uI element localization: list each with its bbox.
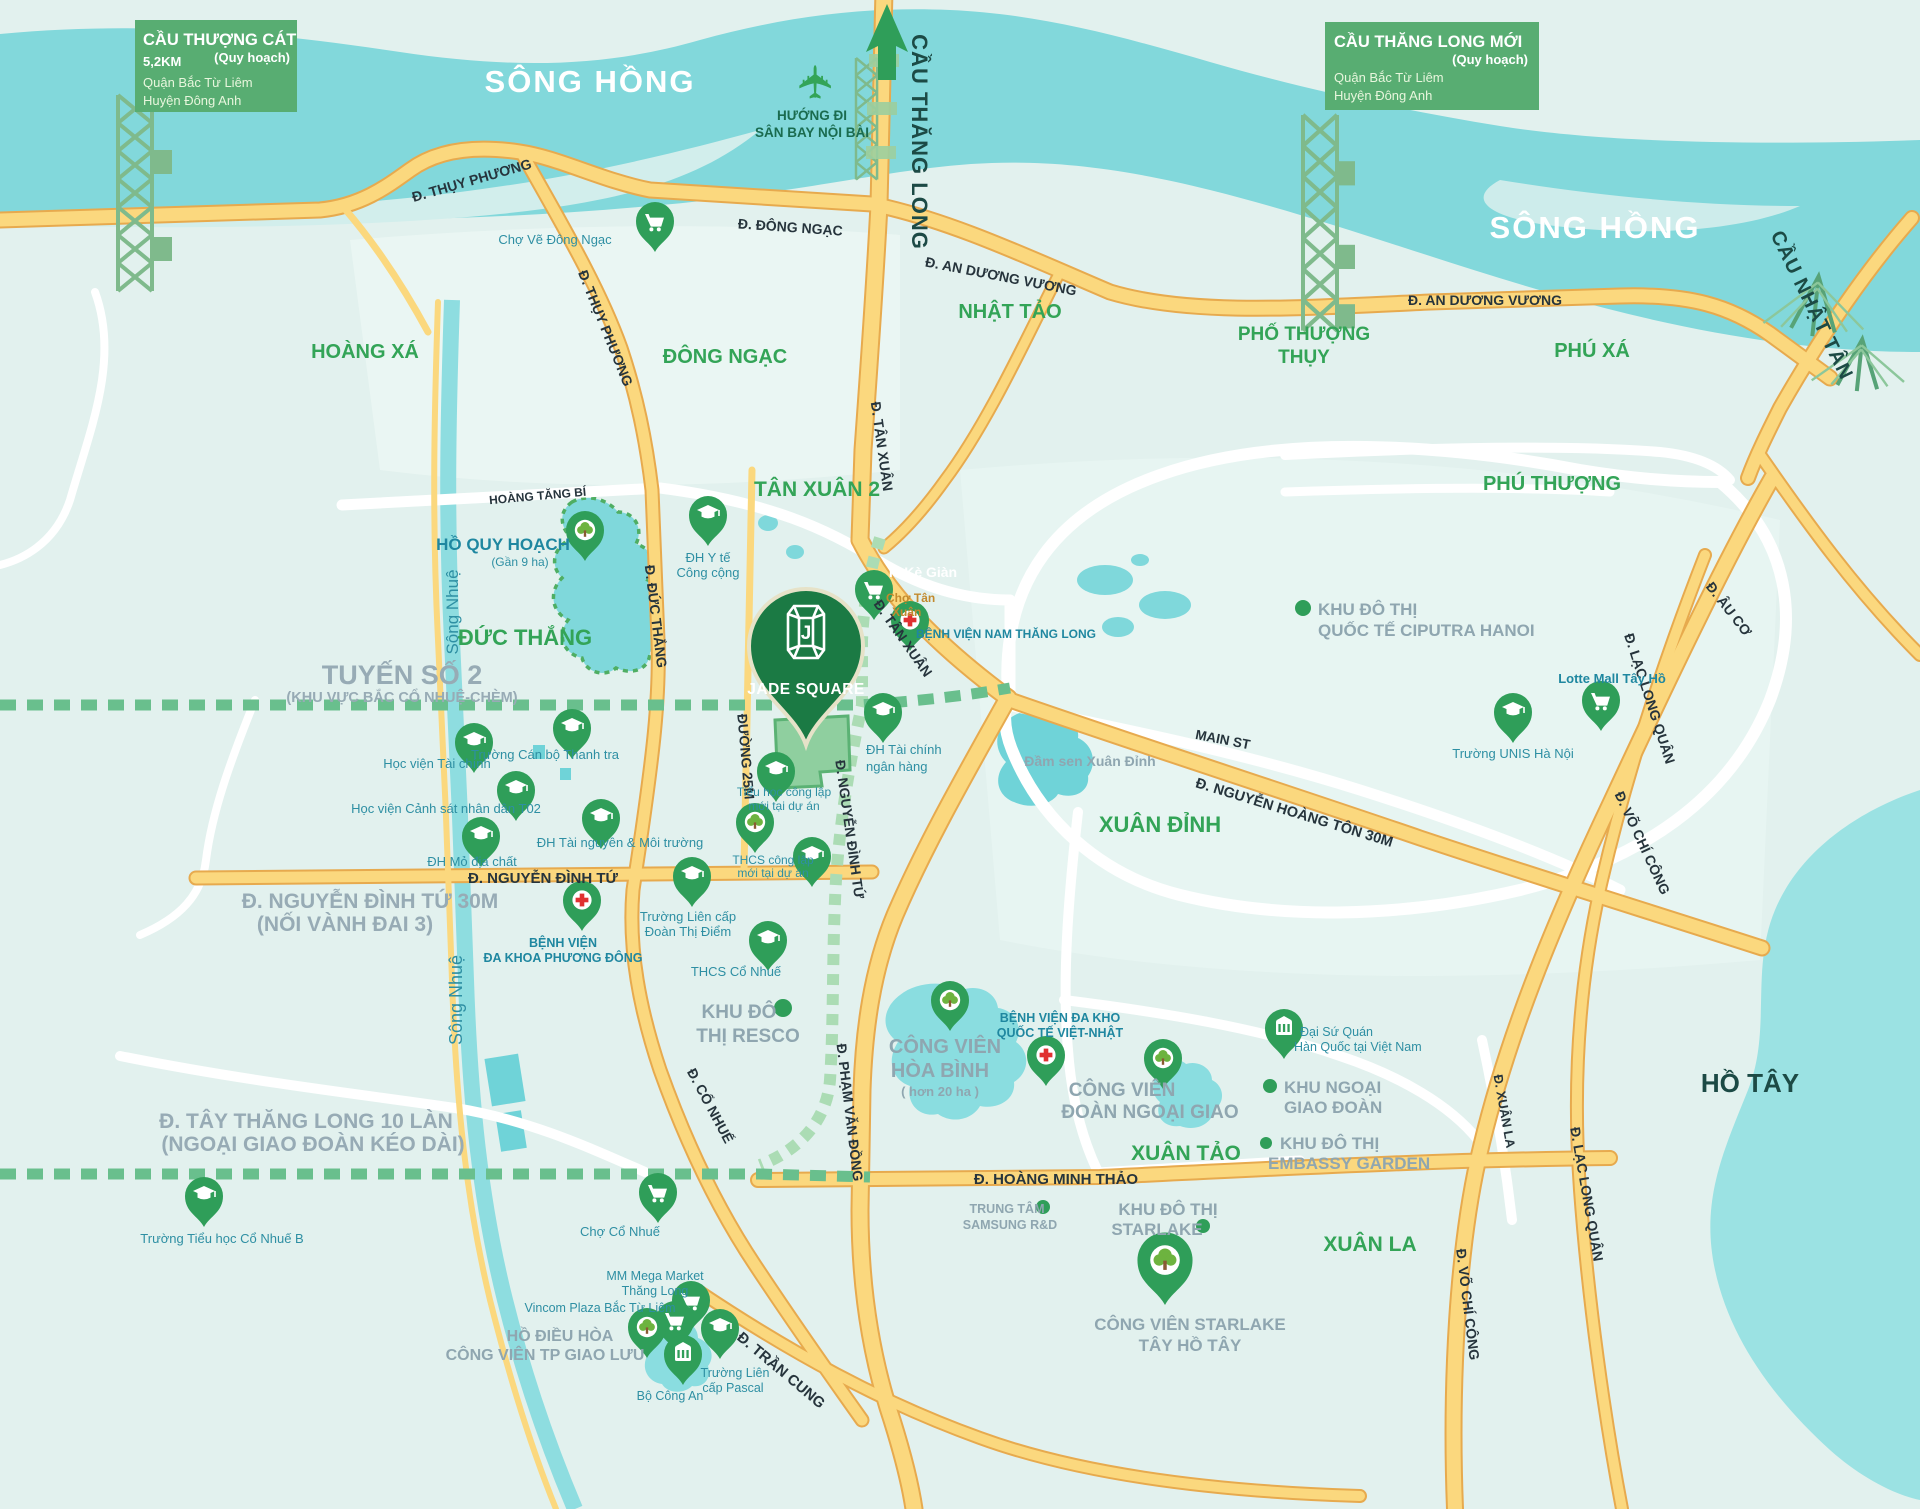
label-resco-1: KHU ĐÔ (702, 1001, 777, 1023)
label-mm-mega-2: Thăng Long (622, 1284, 689, 1298)
label-pho-thuong-thuy-2: THỤY (1278, 347, 1330, 368)
label-embassy-2: EMBASSY GARDEN (1268, 1154, 1430, 1173)
label-phu-xa: PHÚ XÁ (1554, 338, 1630, 362)
label-hoang-xa: HOÀNG XÁ (311, 340, 419, 363)
label-ho-quy-hoach: HỒ QUY HOẠCH (436, 535, 570, 554)
label-ndt-30m-1: Đ. NGUYỄN ĐÌNH TỨ 30M (242, 889, 499, 913)
legend-thang-long-moi-line2: Huyện Đông Anh (1334, 88, 1432, 103)
label-unis: Trường UNIS Hà Nội (1452, 746, 1574, 761)
label-nhat-tao: NHẬT TẢO (958, 299, 1061, 323)
label-vincom: Vincom Plaza Bắc Từ Liêm (524, 1300, 675, 1315)
label-thcs-2: mới tại dự án (737, 866, 808, 880)
label-cv-starlake-1: CÔNG VIÊN STARLAKE (1094, 1315, 1285, 1334)
label-ho-dieu-hoa-2: CÔNG VIÊN TP GIAO LƯU (446, 1345, 645, 1364)
label-xuan-dinh: XUÂN ĐỈNH (1099, 812, 1221, 837)
label-dh-y-te-2: Công cộng (677, 565, 740, 580)
embassy-dot[interactable] (1260, 1137, 1272, 1149)
label-kngd-2: GIAO ĐOÀN (1284, 1098, 1382, 1117)
label-viet-nhat-1: BỆNH VIỆN ĐA KHO (1000, 1010, 1121, 1025)
label-bv-ntl: BỆNH VIỆN NAM THĂNG LONG (916, 626, 1096, 641)
label-phu-thuong: PHÚ THƯỢNG (1483, 471, 1621, 495)
label-ho-tay: HỒ TÂY (1701, 1068, 1799, 1098)
label-song-nhue-2: Sông Nhuệ (446, 955, 466, 1045)
label-duc-thang: ĐỨC THẮNG (458, 625, 592, 650)
khu-ngoai-giao-dot[interactable] (1263, 1079, 1277, 1093)
label-dh-y-te-1: ĐH Y tế (685, 550, 731, 565)
legend-thang-long-moi-title: CẦU THĂNG LONG MỚI (1334, 32, 1522, 51)
label-tuyen-so-2-2: (KHU VỰC BẮC CỔ NHUỆ-CHÈM) (286, 688, 517, 706)
label-hmt: Đ. HOÀNG MINH THẢO (974, 1171, 1138, 1188)
legend-thuong-cat-line1: Quận Bắc Từ Liêm (143, 75, 253, 90)
label-pho-thuong-thuy-1: PHỐ THƯỢNG (1238, 323, 1370, 345)
label-cho-ve-dong-ngac: Chợ Vẽ Đông Ngạc (498, 232, 612, 247)
legend-thang-long-moi-line1: Quận Bắc Từ Liêm (1334, 70, 1444, 85)
label-dong-ngac-area: ĐÔNG NGẠC (663, 344, 787, 368)
label-ndt-h: Đ. NGUYỄN ĐÌNH TỨ (468, 869, 619, 887)
label-hoa-binh-2: HÒA BÌNH (891, 1058, 989, 1082)
label-kdt-starlake-2: STARLAKE (1111, 1220, 1202, 1239)
label-xuan-la: XUÂN LA (1323, 1232, 1416, 1256)
label-dsq-2: Hàn Quốc tại Việt Nam (1294, 1040, 1422, 1054)
legend-thang-long-moi-planning: (Quy hoạch) (1452, 52, 1528, 67)
legend-thang-long-moi: CẦU THĂNG LONG MỚI (Quy hoạch) Quận Bắc … (1325, 22, 1539, 110)
label-samsung-1: TRUNG TÂM (970, 1201, 1045, 1216)
label-dh-mo: ĐH Mỏ địa chất (427, 854, 517, 869)
airplane-icon: ✈ (790, 63, 842, 102)
label-resco-2: THỊ RESCO (696, 1026, 799, 1047)
label-adv-2: Đ. AN DƯƠNG VƯƠNG (1408, 292, 1562, 308)
label-dng-1: CÔNG VIÊN (1069, 1079, 1176, 1101)
label-dh-tcnh-1: ĐH Tài chính (866, 742, 942, 757)
label-ho-dieu-hoa-1: HỒ ĐIỀU HÒA (507, 1326, 614, 1345)
location-map: ✈ J JADE SQUARE (0, 0, 1920, 1509)
label-lotte: Lotte Mall Tây Hồ (1558, 671, 1666, 686)
label-dh-tcnh-2: ngân hàng (866, 759, 927, 774)
label-canh-sat: Học viện Cảnh sát nhân dân T02 (351, 801, 541, 816)
legend-thuong-cat-planning: (Quy hoạch) (214, 50, 290, 65)
label-ciputra-2: QUỐC TẾ CIPUTRA HANOI (1318, 620, 1535, 640)
label-ttl-2: (NGOẠI GIAO ĐOÀN KÉO DÀI) (161, 1133, 464, 1156)
label-embassy-1: KHU ĐÔ THỊ (1280, 1134, 1379, 1153)
label-bv-pd-2: ĐA KHOA PHƯƠNG ĐÔNG (484, 950, 643, 965)
label-can-bo-thanh-tra: Trường Cán bộ Thanh tra (471, 747, 620, 762)
label-hoa-binh-3: ( hơn 20 ha ) (901, 1084, 979, 1099)
label-cv-starlake-2: TÂY HỒ TÂY (1139, 1336, 1242, 1355)
label-pascal-1: Trường Liên (701, 1366, 770, 1380)
label-tuyen-so-2-1: TUYẾN SỐ 2 (322, 658, 483, 690)
label-kngd-1: KHU NGOẠI (1284, 1078, 1381, 1097)
label-kdt-starlake-1: KHU ĐÔ THỊ (1118, 1200, 1217, 1219)
label-cau-thang-long: CẦU THĂNG LONG (907, 34, 932, 250)
label-tieu-hoc-1: Tiểu học công lập (737, 785, 832, 799)
label-airport-2: SÂN BAY NỘI BÀI (755, 125, 869, 140)
label-ndt-30m-2: (NỐI VÀNH ĐAI 3) (257, 912, 433, 936)
label-ho-quy-hoach-area: (Gần 9 ha) (491, 555, 548, 569)
legend-thuong-cat-line2: Huyện Đông Anh (143, 93, 241, 108)
legend-thuong-cat-distance: 5,2KM (143, 54, 181, 69)
label-cho-tan-xuan-2: Xuân (892, 605, 921, 619)
jade-monogram: J (801, 623, 812, 644)
label-ttl-1: Đ. TÂY THĂNG LONG 10 LÀN (159, 1109, 453, 1133)
legend-thuong-cat-title: CẦU THƯỢNG CÁT (143, 30, 296, 49)
legend-thuong-cat: CẦU THƯỢNG CÁT 5,2KM (Quy hoạch) Quận Bắ… (135, 20, 297, 112)
label-bo-cong-an: Bộ Công An (637, 1389, 704, 1403)
label-dtd-1: Trường Liên cấp (640, 909, 736, 924)
label-co-nhue-b: Trường Tiểu học Cổ Nhuế B (140, 1231, 303, 1246)
label-dh-tai-nguyen: ĐH Tài nguyên & Môi trường (537, 835, 704, 850)
label-samsung-2: SAMSUNG R&D (963, 1218, 1057, 1232)
label-song-hong-2: SÔNG HỒNG (1490, 209, 1701, 245)
label-dtd-2: Đoàn Thị Điểm (645, 924, 731, 939)
label-dsq-1: Đại Sứ Quán (1300, 1025, 1373, 1039)
label-cho-co-nhue: Chợ Cổ Nhuế (580, 1224, 661, 1239)
label-ciputra-1: KHU ĐÔ THỊ (1318, 600, 1417, 619)
jade-square-label: JADE SQUARE (747, 681, 864, 698)
label-bv-pd-1: BỆNH VIỆN (529, 935, 597, 950)
label-airport-1: HƯỚNG ĐI (777, 108, 847, 123)
label-dng-2: ĐOÀN NGOẠI GIAO (1061, 1101, 1238, 1123)
label-pascal-2: cấp Pascal (702, 1381, 763, 1395)
label-xuan-tao: XUÂN TẢO (1131, 1141, 1241, 1165)
label-hoa-binh-1: CÔNG VIÊN (889, 1034, 1001, 1058)
label-song-hong-1: SÔNG HỒNG (485, 63, 696, 99)
label-cho-tan-xuan-1: Chợ Tân (886, 591, 935, 605)
label-ke-gian: P. Kè Giàn (889, 564, 957, 580)
resco-dot[interactable] (774, 999, 792, 1017)
map-canvas: ✈ J JADE SQUARE (0, 0, 1920, 1509)
label-tieu-hoc-2: mới tại dự án (748, 799, 819, 813)
label-mm-mega-1: MM Mega Market (606, 1269, 704, 1283)
label-thcs-1: THCS công lập (732, 853, 814, 867)
label-tan-xuan-2: TÂN XUÂN 2 (754, 477, 880, 501)
label-viet-nhat-2: QUỐC TẾ VIỆT-NHẬT (997, 1025, 1124, 1040)
ciputra-dot[interactable] (1295, 600, 1311, 616)
label-thcs-co-nhue: THCS Cổ Nhuế (691, 964, 782, 979)
label-dam-sen: Đầm sen Xuân Đỉnh (1024, 753, 1155, 769)
